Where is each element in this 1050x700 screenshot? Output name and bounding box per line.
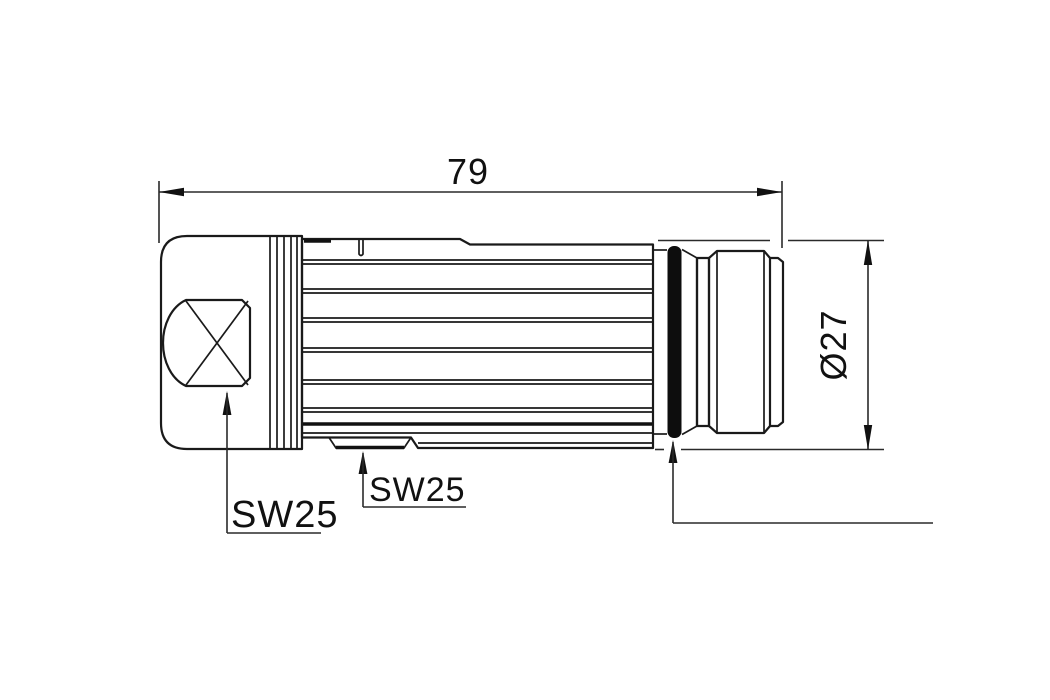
coupling-nut	[709, 251, 770, 433]
end-ring	[770, 258, 783, 426]
dimension-length-label: 79	[447, 151, 489, 192]
cable-gland-cap	[161, 236, 302, 449]
seal-leader	[669, 440, 933, 523]
technical-drawing-page: 79 Ø27 SW25 SW25	[0, 0, 1050, 700]
coupling-neck	[682, 250, 697, 435]
connector-part	[161, 236, 783, 449]
wrench-cap-label: SW25	[231, 494, 338, 536]
arrowhead-top	[864, 240, 872, 265]
arrowhead-left	[159, 188, 184, 196]
dimension-length: 79	[159, 151, 782, 248]
o-ring-seal-band	[668, 246, 682, 438]
arrowhead-right	[757, 188, 782, 196]
bottom-notch	[329, 438, 411, 449]
wrench-body-label: SW25	[369, 471, 466, 509]
top-slot	[359, 239, 363, 256]
seal-neck	[654, 250, 667, 434]
connector-body-outline	[302, 239, 653, 448]
cap-rib-lines	[270, 236, 297, 449]
arrowhead-bottom	[864, 425, 872, 450]
body-groove-lines	[303, 260, 652, 443]
label-wrench-body: SW25	[359, 451, 466, 509]
connector-technical-drawing: 79 Ø27 SW25 SW25	[0, 0, 1050, 700]
coupling-ring	[697, 258, 709, 426]
cross-square	[163, 300, 250, 386]
dimension-diameter-label: Ø27	[813, 309, 854, 380]
